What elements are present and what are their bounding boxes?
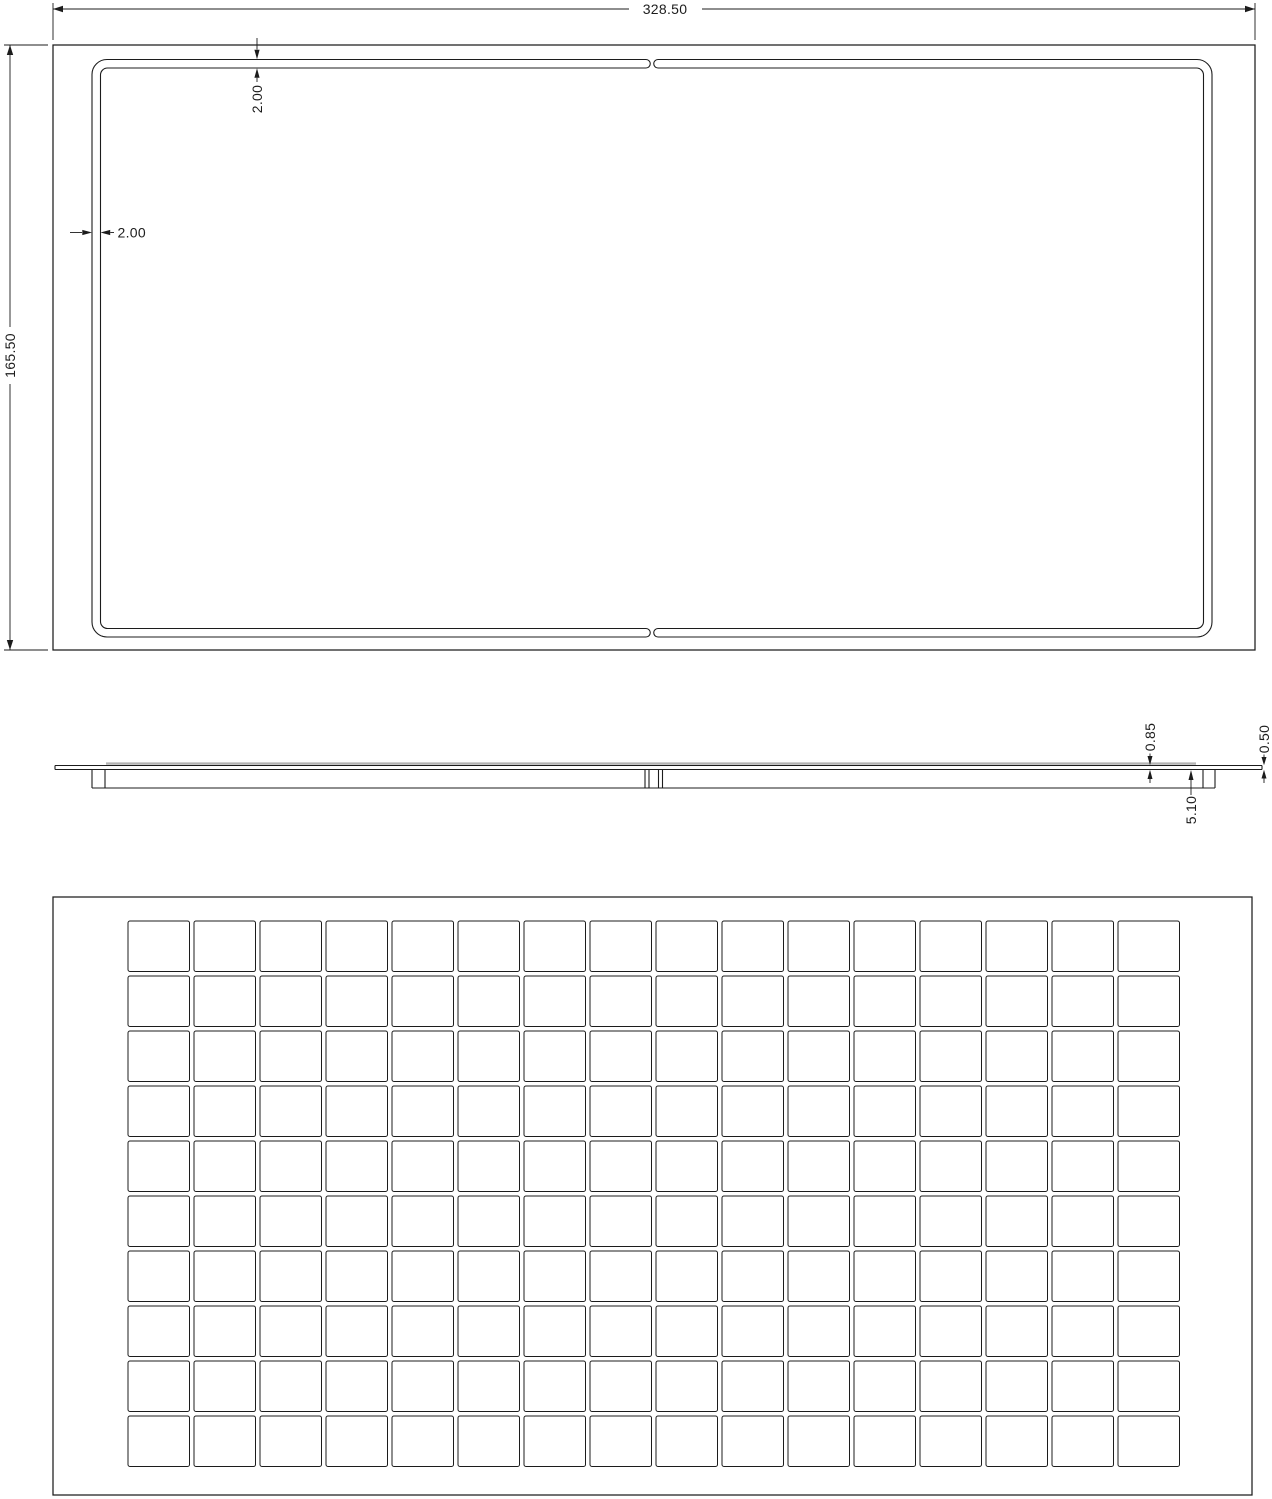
grid-cell [392,1086,454,1137]
grid-cell [1052,976,1114,1027]
arrow-down-icon [1262,757,1267,765]
grid-cell [194,921,256,972]
dim-groove-width-top-text: 2.00 [249,85,265,113]
grid-cell [260,1086,322,1137]
grid-cell [656,976,718,1027]
grid-cell [260,1416,322,1467]
grid-cell [920,1196,982,1247]
grid-cell [656,921,718,972]
dim-overall-width-text: 328.50 [643,1,688,17]
arrow-right-icon [1245,6,1255,12]
grid-cell [1118,1416,1180,1467]
grid-cell [920,976,982,1027]
grid-cell [458,1361,520,1412]
grid-cell [1118,1086,1180,1137]
grid-cell [1118,1306,1180,1357]
arrow-up-icon [1189,770,1194,780]
grid-cell [392,921,454,972]
arrow-left-icon [101,230,111,235]
grid-cell [722,1196,784,1247]
grid-cell [194,1251,256,1302]
grid-cell [524,1416,586,1467]
grid-cell [524,1086,586,1137]
grid-cell [722,1361,784,1412]
dim-overall-height-text: 165.50 [2,333,18,378]
grid-cell [458,1141,520,1192]
grid-cell [1118,1251,1180,1302]
grid-cell [392,1306,454,1357]
grid-cell [920,1141,982,1192]
grid-cell [194,1306,256,1357]
grid-cell [986,1251,1048,1302]
grid-cell [392,1361,454,1412]
gasket-groove-left [92,60,650,638]
grid-cell [788,1416,850,1467]
grid-cell [590,1306,652,1357]
side-view: 0.85 5.10 0.50 [55,723,1272,824]
grid-cell [722,1086,784,1137]
grid-cell [722,921,784,972]
grid-cell [920,1031,982,1082]
grid-cell [458,1306,520,1357]
dim-top-plate-thickness: 0.85 [1142,723,1158,783]
grid-cell [590,1361,652,1412]
grid-cell [1118,1031,1180,1082]
grid-cell [326,1031,388,1082]
grid-cell [920,1361,982,1412]
grid-cell [590,1196,652,1247]
grid-cell [986,976,1048,1027]
grid-cell [1052,1251,1114,1302]
grid-cell [260,1141,322,1192]
grid-cell [1052,1031,1114,1082]
grid-cell [854,921,916,972]
arrow-left-icon [53,6,63,12]
grid-cell [260,921,322,972]
grid-cell [722,976,784,1027]
side-view-top-plate [55,766,1262,770]
drawing-sheet: 328.50 165.50 2.00 2.00 [0,0,1272,1499]
grid-cell [392,1196,454,1247]
grid-cell [788,921,850,972]
side-view-center-split [645,770,663,789]
arrow-up-icon [7,45,13,55]
grid-cell [1118,1361,1180,1412]
grid-cell [326,921,388,972]
grid-cell [854,1416,916,1467]
grid-cell [194,1416,256,1467]
top-view: 328.50 165.50 2.00 2.00 [2,1,1255,650]
grid-cell [986,1306,1048,1357]
grid-cell [128,1306,190,1357]
grid-cell [920,1086,982,1137]
grid-cell [854,1141,916,1192]
grid-cell [128,1141,190,1192]
grid-cell [326,1416,388,1467]
grid-cell [986,1361,1048,1412]
grid-cell [1052,1196,1114,1247]
grid-cell [920,1306,982,1357]
arrow-down-icon [7,640,13,650]
grid-cell [722,1306,784,1357]
grid-cell [788,1031,850,1082]
grid-cell [128,1031,190,1082]
grid-cell [260,1031,322,1082]
dim-top-plate-thickness-text: 0.85 [1142,723,1158,751]
grid-cell [590,1251,652,1302]
grid-cell [392,1251,454,1302]
grid-cell [920,1416,982,1467]
grid-cell [326,1196,388,1247]
grid-cell [458,1416,520,1467]
grid-cell [1118,1196,1180,1247]
grid-cell [590,1141,652,1192]
grid-cell [854,1086,916,1137]
arrow-right-icon [82,230,92,235]
grid-cell [524,1306,586,1357]
grid-cell [920,1251,982,1302]
grid-cell [326,1251,388,1302]
grid-cell [194,1361,256,1412]
top-view-outline [53,45,1255,650]
grid-cell [524,1196,586,1247]
grid-cell [590,1031,652,1082]
grid-cell [1052,1306,1114,1357]
grid-cell [194,1086,256,1137]
grid-cell [128,1361,190,1412]
grid-cell [128,1251,190,1302]
grid-cell [1052,1416,1114,1467]
grid-cell [590,1416,652,1467]
dim-overall-width: 328.50 [53,1,1255,40]
grid-cell [392,1416,454,1467]
bottom-view [53,897,1252,1495]
dim-overall-height: 165.50 [2,45,48,650]
grid-cell [656,1251,718,1302]
dim-edge-thickness: 0.50 [1256,725,1272,783]
dim-groove-width-left-text: 2.00 [118,225,146,241]
grid-cell [986,1086,1048,1137]
grid-cell [854,1361,916,1412]
grid-cell [854,1251,916,1302]
grid-cell [986,1196,1048,1247]
grid-cell [1052,1086,1114,1137]
grid-cell [1118,921,1180,972]
grid-cell [260,976,322,1027]
grid-cell [326,1086,388,1137]
grid-cell [854,1306,916,1357]
grid-cell [656,1086,718,1137]
dim-overall-depth: 5.10 [1183,770,1199,824]
grid-cell [788,976,850,1027]
dim-groove-width-left: 2.00 [70,225,146,241]
grid-cell [326,1361,388,1412]
grid-cell [458,1251,520,1302]
grid-cell [458,1196,520,1247]
grid-cell [260,1361,322,1412]
grid-cell [326,1306,388,1357]
grid-cell [788,1251,850,1302]
grid-cell [392,1141,454,1192]
grid-cell [524,921,586,972]
grid-cell [788,1141,850,1192]
arrow-up-icon [254,68,259,78]
grid-cell [722,1031,784,1082]
grid-cell [722,1141,784,1192]
arrow-down-icon [254,50,259,60]
grid-cell [656,1031,718,1082]
grid-cell [128,921,190,972]
grid-cell [392,1031,454,1082]
grid-cell [524,1361,586,1412]
grid-cell [128,1416,190,1467]
grid-cell [1052,1141,1114,1192]
grid-cell [986,1141,1048,1192]
grid-cell [986,921,1048,972]
grid-cell [1118,976,1180,1027]
grid-cell [656,1361,718,1412]
grid-cell [1052,1361,1114,1412]
grid-cell [788,1196,850,1247]
grid-cell [458,921,520,972]
grid-cell [260,1251,322,1302]
grid-cell [854,1031,916,1082]
fin-grid-pattern [128,921,1180,1467]
grid-cell [128,976,190,1027]
grid-cell [656,1141,718,1192]
grid-cell [722,1251,784,1302]
grid-cell [458,976,520,1027]
arrow-up-icon [1262,770,1267,779]
grid-cell [986,1031,1048,1082]
grid-cell [920,921,982,972]
grid-cell [458,1086,520,1137]
grid-cell [128,1086,190,1137]
grid-cell [194,976,256,1027]
grid-cell [590,1086,652,1137]
grid-cell [194,1196,256,1247]
dim-overall-depth-text: 5.10 [1183,796,1199,824]
grid-cell [194,1141,256,1192]
grid-cell [524,1031,586,1082]
grid-cell [722,1416,784,1467]
grid-cell [260,1306,322,1357]
grid-cell [788,1361,850,1412]
grid-cell [590,921,652,972]
grid-cell [326,976,388,1027]
grid-cell [260,1196,322,1247]
grid-cell [656,1306,718,1357]
grid-cell [1052,921,1114,972]
dim-edge-thickness-text: 0.50 [1256,725,1272,753]
grid-cell [326,1141,388,1192]
technical-drawing-canvas: 328.50 165.50 2.00 2.00 [0,0,1272,1499]
grid-cell [854,1196,916,1247]
grid-cell [194,1031,256,1082]
grid-cell [392,976,454,1027]
side-view-body [92,770,1215,789]
grid-cell [590,976,652,1027]
gasket-groove-right [654,60,1212,638]
grid-cell [1118,1141,1180,1192]
grid-cell [524,1251,586,1302]
grid-cell [986,1416,1048,1467]
grid-cell [524,976,586,1027]
grid-cell [788,1086,850,1137]
grid-cell [524,1141,586,1192]
arrow-up-icon [1148,770,1153,779]
grid-cell [656,1196,718,1247]
grid-cell [854,976,916,1027]
grid-cell [458,1031,520,1082]
dim-groove-width-top: 2.00 [249,38,265,113]
grid-cell [128,1196,190,1247]
grid-cell [788,1306,850,1357]
grid-cell [656,1416,718,1467]
